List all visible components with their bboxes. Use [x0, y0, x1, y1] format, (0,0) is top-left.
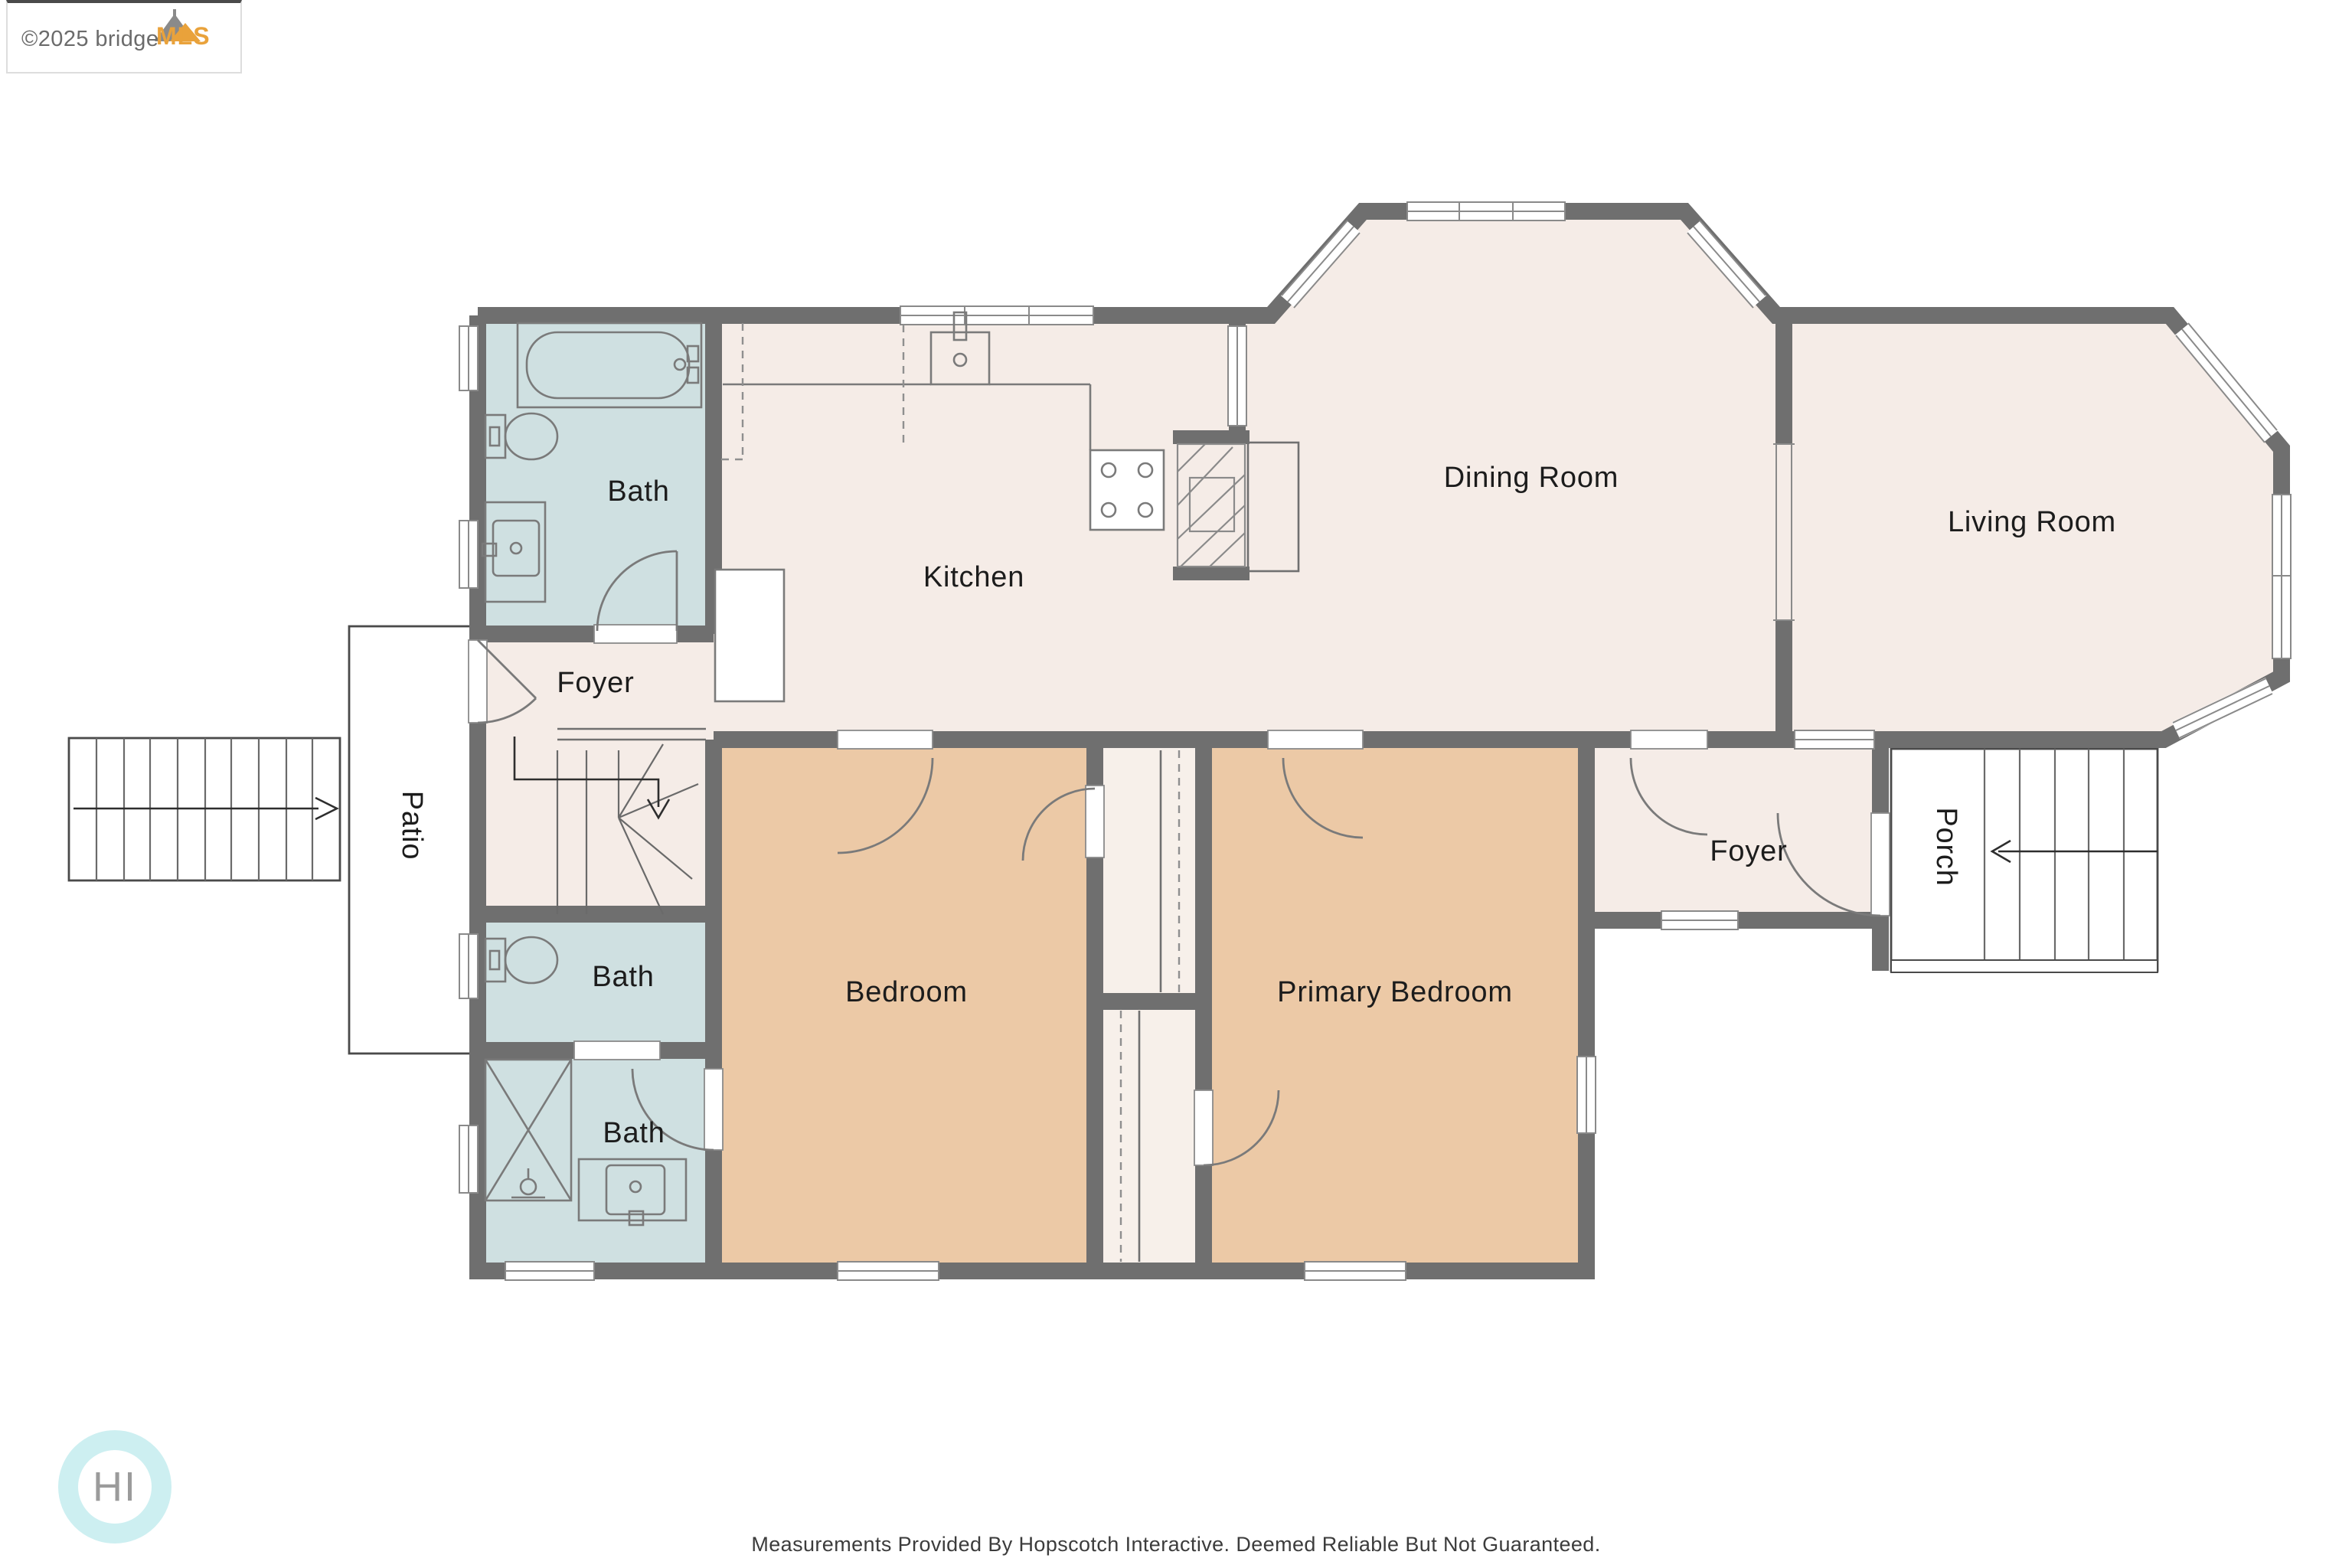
exterior-stairs [69, 738, 340, 880]
dining-bay-window [1407, 202, 1565, 220]
room-bath-top-floor [478, 315, 714, 634]
window [838, 1262, 939, 1280]
room-label-primary-bedroom: Primary Bedroom [1277, 976, 1513, 1008]
refrigerator-icon [715, 570, 784, 701]
living-bay-right-window [2272, 495, 2291, 658]
dining-living-opening [1773, 444, 1795, 620]
kitchen-triple-window [900, 306, 1093, 325]
room-label-kitchen: Kitchen [923, 561, 1024, 593]
window [459, 934, 478, 998]
room-label-bath-top: Bath [607, 475, 669, 508]
room-label-patio: Patio [396, 791, 428, 861]
watermark-brand: MLS [156, 24, 211, 52]
room-label-bath-bottom: Bath [603, 1117, 665, 1149]
room-label-living-room: Living Room [1948, 506, 2116, 538]
room-label-bath-middle: Bath [592, 961, 654, 993]
window [1305, 1262, 1406, 1280]
hopscotch-logo-text: HI [93, 1463, 137, 1511]
window [1661, 911, 1738, 929]
window [505, 1262, 594, 1280]
room-label-foyer-main: Foyer [557, 667, 634, 699]
stairs-direction-arrow-icon [315, 798, 337, 819]
window [459, 326, 478, 390]
window [1577, 1057, 1596, 1133]
hopscotch-interactive-logo: HI [58, 1430, 171, 1543]
room-label-foyer-entry: Foyer [1710, 835, 1787, 867]
window [459, 1125, 478, 1193]
window [1795, 730, 1874, 749]
pass-through-window [1228, 326, 1246, 426]
room-label-dining-room: Dining Room [1444, 462, 1619, 494]
disclaimer-text: Measurements Provided By Hopscotch Inter… [0, 1533, 2352, 1556]
floor-plan: Bath Kitchen Dining Room Living Room Foy… [0, 0, 2352, 1568]
room-bath-bottom-floor [478, 1050, 714, 1271]
room-label-bedroom: Bedroom [845, 976, 968, 1008]
porch-steps [1984, 749, 2124, 960]
stove-icon [1090, 450, 1164, 530]
bridgemls-watermark: ©2025 bridge MLS [6, 0, 242, 73]
room-label-porch: Porch [1930, 807, 1962, 886]
watermark-copyright: ©2025 bridge [21, 28, 158, 52]
floorplan-page: Bath Kitchen Dining Room Living Room Foy… [0, 0, 2352, 1568]
window [459, 521, 478, 588]
opening-bath-divider [574, 1041, 660, 1060]
